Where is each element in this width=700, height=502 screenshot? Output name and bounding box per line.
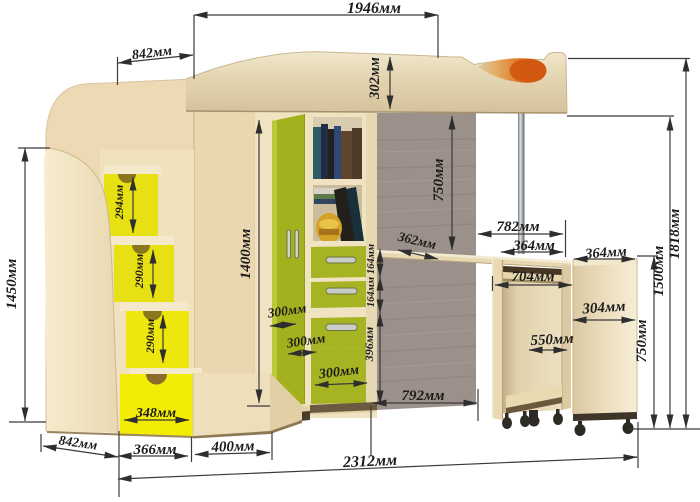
svg-text:400мм: 400мм <box>210 438 255 456</box>
svg-text:290мм: 290мм <box>132 254 146 289</box>
svg-text:1500мм: 1500мм <box>651 246 667 297</box>
svg-text:290мм: 290мм <box>143 319 157 354</box>
svg-text:1818мм: 1818мм <box>667 209 683 260</box>
svg-text:750мм: 750мм <box>634 319 650 362</box>
svg-text:550мм: 550мм <box>530 331 574 349</box>
svg-text:750мм: 750мм <box>431 158 447 201</box>
svg-text:782мм: 782мм <box>496 219 539 235</box>
svg-text:792мм: 792мм <box>401 388 444 404</box>
svg-text:704мм: 704мм <box>511 269 554 285</box>
svg-text:364мм: 364мм <box>584 244 628 263</box>
svg-text:366мм: 366мм <box>132 442 176 458</box>
svg-text:348мм: 348мм <box>135 406 177 421</box>
svg-text:1400мм: 1400мм <box>238 229 254 280</box>
svg-text:2312мм: 2312мм <box>342 452 398 471</box>
svg-text:396мм: 396мм <box>362 327 376 362</box>
svg-text:1946мм: 1946мм <box>347 0 401 17</box>
svg-text:164мм: 164мм <box>366 244 377 274</box>
svg-text:1450мм: 1450мм <box>4 259 20 310</box>
svg-text:294мм: 294мм <box>112 185 126 220</box>
svg-text:364мм: 364мм <box>512 238 555 254</box>
svg-text:302мм: 302мм <box>367 57 383 100</box>
svg-text:164мм: 164мм <box>366 277 377 307</box>
svg-text:304мм: 304мм <box>581 299 626 318</box>
